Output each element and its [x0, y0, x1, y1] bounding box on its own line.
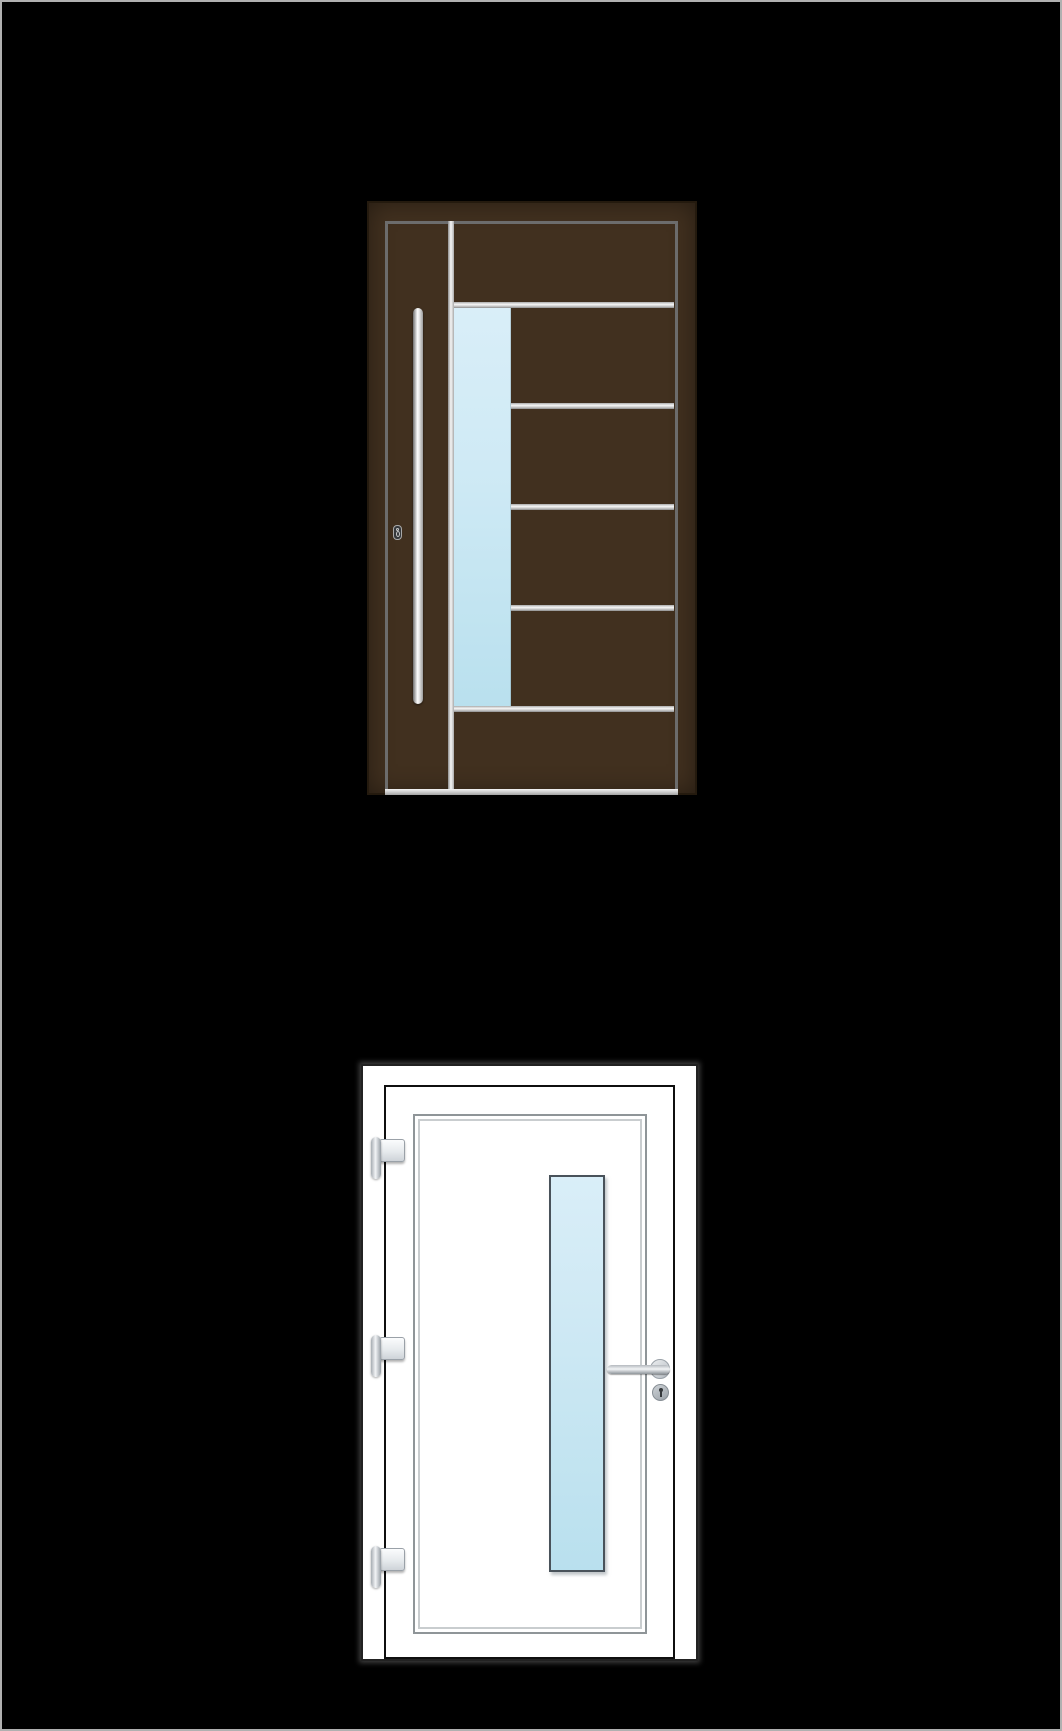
hinge-pin: [371, 1335, 381, 1377]
hinge-bottom: [371, 1546, 405, 1588]
glazing-panel: [549, 1175, 605, 1572]
hinge-pin: [371, 1546, 381, 1588]
inner-panel-border: [413, 1114, 647, 1634]
bar-handle: [413, 308, 423, 704]
horizontal-trim-stripe: [454, 706, 674, 712]
door-bottom-sill: [385, 789, 678, 795]
glass-panel: [454, 308, 511, 706]
cylinder-lock: [393, 525, 402, 540]
vertical-trim-stripe: [448, 221, 454, 789]
door-leaf: [384, 1085, 675, 1659]
horizontal-trim-stripe: [511, 403, 674, 409]
lock-cylinder: [652, 1384, 669, 1401]
hinge-body: [379, 1139, 405, 1162]
lever-handle: [607, 1365, 670, 1374]
horizontal-trim-stripe: [511, 605, 674, 611]
keyhole-icon: [396, 531, 400, 537]
hinge-top: [371, 1137, 405, 1179]
hinge-body: [379, 1548, 405, 1571]
configurator-canvas: [0, 0, 1062, 1731]
hinge-pin: [371, 1137, 381, 1179]
hinge-middle: [371, 1335, 405, 1377]
horizontal-trim-stripe: [511, 504, 674, 510]
inner-panel-border-line: [418, 1119, 642, 1629]
keyhole-icon: [660, 1391, 662, 1397]
brown-door-preview[interactable]: [367, 201, 697, 795]
white-door-preview[interactable]: [361, 1064, 698, 1661]
hinge-body: [379, 1337, 405, 1360]
